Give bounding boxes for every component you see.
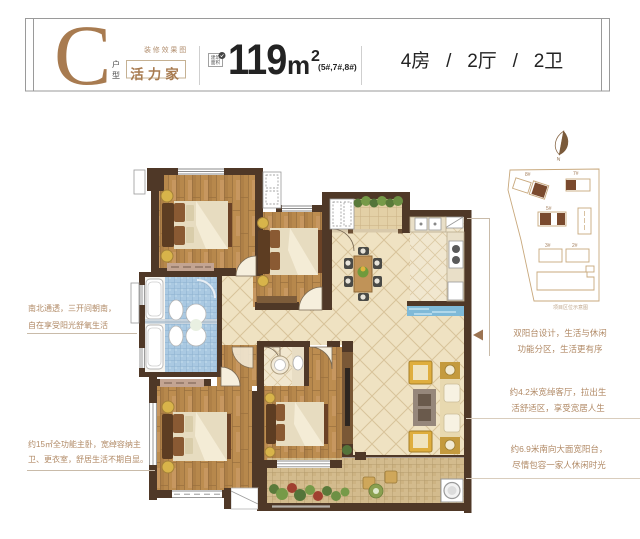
svg-text:2#: 2# bbox=[572, 243, 578, 249]
svg-text:5#: 5# bbox=[546, 206, 552, 212]
svg-text:8#: 8# bbox=[525, 172, 531, 178]
svg-text:3#: 3# bbox=[545, 243, 551, 249]
svg-text:N: N bbox=[556, 156, 561, 162]
svg-text:7#: 7# bbox=[573, 171, 579, 177]
